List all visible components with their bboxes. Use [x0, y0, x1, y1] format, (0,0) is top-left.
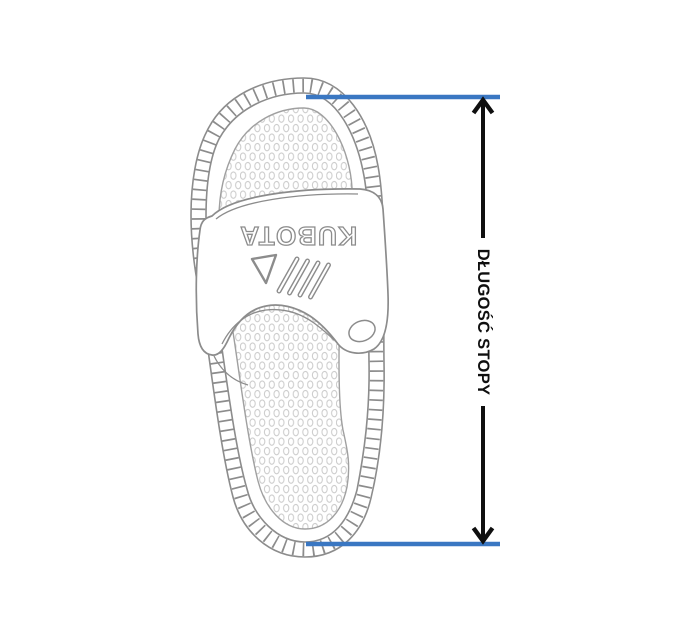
- measurement-label: DŁUGOŚĆ STOPY: [474, 249, 493, 396]
- size-guide-canvas: KUBOTA: [0, 0, 700, 642]
- sandal-illustration: KUBOTA: [191, 78, 388, 557]
- brand-logo-text: KUBOTA: [239, 221, 357, 251]
- size-guide-diagram: KUBOTA: [0, 0, 700, 642]
